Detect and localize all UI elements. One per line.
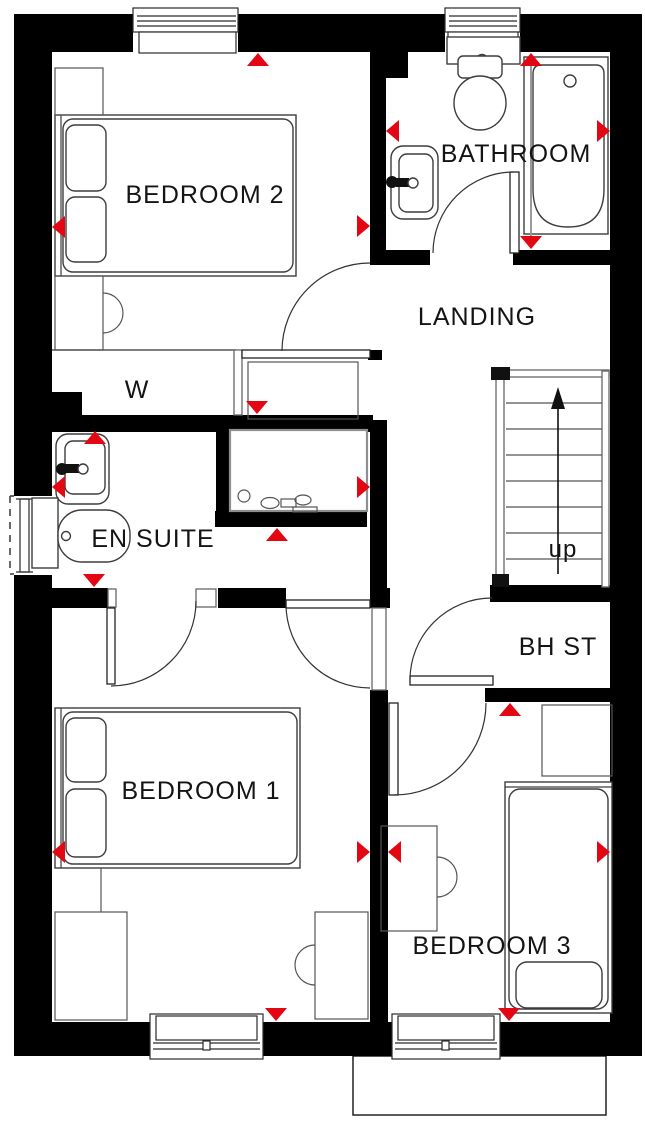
tap-icon bbox=[64, 464, 79, 473]
bedroom2-furniture bbox=[55, 68, 296, 350]
desk bbox=[55, 276, 103, 350]
door-frame-strip bbox=[372, 608, 386, 690]
desk bbox=[381, 826, 437, 931]
bedroom1-label: BEDROOM 1 bbox=[121, 777, 280, 805]
door-leaf bbox=[286, 600, 370, 608]
chair bbox=[437, 857, 457, 897]
bathroom-label: BATHROOM bbox=[441, 140, 592, 168]
door-leaf bbox=[510, 172, 519, 253]
dimension-marker bbox=[247, 53, 269, 66]
storage-recess bbox=[248, 362, 358, 419]
door-leaf bbox=[410, 676, 493, 685]
door-swing bbox=[394, 703, 486, 795]
bedroom2-label: BEDROOM 2 bbox=[125, 181, 284, 209]
pillow bbox=[66, 718, 106, 782]
wardrobe-label: W bbox=[125, 376, 150, 404]
basin bbox=[386, 146, 438, 219]
single-bed bbox=[505, 782, 612, 1013]
dimension-marker bbox=[388, 841, 401, 863]
bedside-table bbox=[542, 705, 612, 776]
bedroom3-label: BEDROOM 3 bbox=[412, 932, 571, 960]
dimension-marker bbox=[357, 215, 370, 237]
pillow bbox=[516, 962, 602, 1008]
door-leaf bbox=[107, 608, 115, 684]
pillow bbox=[66, 789, 106, 857]
newel-post bbox=[491, 367, 510, 380]
window bbox=[150, 1014, 263, 1059]
desk bbox=[315, 912, 368, 1019]
window bbox=[133, 8, 238, 53]
dimension-marker bbox=[266, 528, 288, 541]
newel-post bbox=[492, 574, 509, 587]
wardrobe-jamb bbox=[234, 350, 242, 415]
window bbox=[392, 1014, 500, 1059]
tap-icon bbox=[78, 464, 88, 474]
bathroom-fixtures bbox=[386, 37, 608, 238]
ensuite-label: EN SUITE bbox=[91, 525, 214, 553]
floor-plan: BEDROOM 2 BATHROOM LANDING W EN SUITE up… bbox=[0, 0, 645, 1128]
landing-label: LANDING bbox=[418, 303, 536, 331]
dimension-marker bbox=[246, 401, 268, 414]
bedside-table bbox=[55, 68, 103, 115]
shower-enclosure bbox=[230, 430, 367, 512]
door-swing bbox=[410, 598, 492, 680]
pillow bbox=[66, 125, 106, 191]
door-jamb bbox=[196, 589, 216, 607]
door-leaf bbox=[242, 350, 370, 358]
door-swing bbox=[286, 604, 370, 688]
handrail bbox=[496, 377, 504, 575]
chair bbox=[295, 945, 315, 985]
dimension-marker bbox=[520, 236, 542, 249]
dimension-marker bbox=[357, 841, 370, 863]
stair-top-edge bbox=[495, 370, 609, 377]
floor-plan-drawing: BEDROOM 2 BATHROOM LANDING W EN SUITE up… bbox=[0, 0, 645, 1128]
stair-stringer bbox=[602, 371, 609, 587]
door-leaf bbox=[389, 703, 398, 795]
bedroom3-furniture bbox=[381, 705, 612, 1013]
dimension-marker bbox=[265, 1008, 287, 1021]
door-swing bbox=[433, 172, 514, 253]
door-jamb bbox=[108, 589, 116, 607]
bhst-label: BH ST bbox=[519, 633, 598, 661]
wardrobe-unit bbox=[55, 912, 127, 1020]
stairs-up-label: up bbox=[549, 536, 578, 563]
chair bbox=[103, 293, 123, 333]
pillow bbox=[66, 197, 106, 262]
up-arrow-head bbox=[551, 387, 565, 409]
tap-icon bbox=[396, 178, 409, 187]
dimension-marker bbox=[499, 703, 521, 716]
dimension-marker bbox=[83, 574, 105, 587]
dimension-marker bbox=[386, 120, 399, 142]
bedroom1-furniture bbox=[55, 708, 368, 1020]
tap-icon bbox=[408, 178, 418, 188]
toilet bbox=[447, 37, 520, 130]
dimension-marker bbox=[498, 1008, 520, 1021]
door-swing bbox=[111, 601, 196, 686]
canopy-outline bbox=[353, 1056, 606, 1115]
